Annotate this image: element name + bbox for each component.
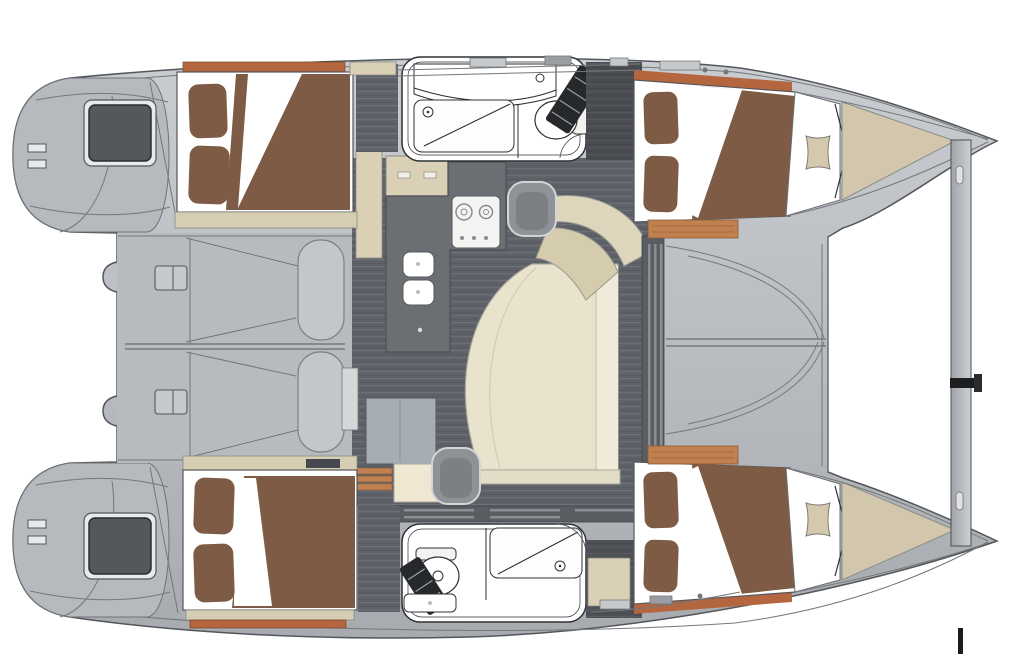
cooktop <box>452 196 500 248</box>
sofa-plinth <box>478 470 620 484</box>
top-stern <box>13 78 178 232</box>
top-forward-cabin <box>634 70 796 238</box>
cooktop-knob <box>472 236 476 240</box>
sofa-back-cushion <box>596 266 618 470</box>
drain <box>418 328 422 332</box>
deck-latch <box>155 390 187 414</box>
salon-chair-bottom <box>432 448 480 504</box>
transom-step <box>28 520 46 528</box>
cooktop-knob <box>484 236 488 240</box>
corridor-cabinet <box>588 558 630 606</box>
bed-shelf <box>186 610 354 620</box>
fridge-cabinet <box>366 398 436 464</box>
top-head <box>402 57 604 161</box>
bed-pillow <box>643 155 679 212</box>
slat-panel <box>342 368 358 430</box>
cabinet-handle <box>398 172 410 178</box>
bed-pillow <box>193 477 235 534</box>
vent <box>306 459 340 468</box>
bottom-head <box>399 524 586 622</box>
beam-fitting <box>974 374 982 392</box>
transom-step <box>28 144 46 152</box>
cockpit-bench-bottom <box>298 352 344 452</box>
beam-slot <box>956 166 963 184</box>
shower-pan <box>490 528 582 578</box>
bed-trim <box>183 62 345 72</box>
beam-fitting <box>958 628 963 654</box>
bed-pillow <box>643 471 679 528</box>
bed-pillow <box>188 145 230 204</box>
bed-shelf <box>175 212 357 228</box>
salon-lower-wall <box>396 506 646 522</box>
bed-pillow <box>643 91 679 144</box>
bottom-stern <box>13 463 178 617</box>
shower-pan <box>414 100 514 152</box>
beam-slot <box>956 492 963 510</box>
cooktop-knob <box>460 236 464 240</box>
cabin-corridor-floor <box>356 64 398 152</box>
headboard <box>648 220 738 238</box>
top-stern-hatch <box>89 105 151 161</box>
bottom-stern-hatch <box>89 518 151 574</box>
transom-step <box>28 160 46 168</box>
bed-pillow <box>188 83 228 138</box>
salon-chair-top <box>508 182 556 236</box>
aft-cabinet-strip <box>356 150 382 258</box>
bottom-forward-cabin <box>634 446 796 614</box>
bed-pillow <box>193 543 235 602</box>
cabinet-handle <box>424 172 436 178</box>
catamaran-floorplan <box>0 0 1016 665</box>
cabin-corridor-floor <box>358 506 400 612</box>
deck-latch <box>155 266 187 290</box>
headboard <box>648 446 738 464</box>
galley-upper-cabinet <box>386 156 448 196</box>
companionway-steps <box>352 468 392 490</box>
bow-cushion <box>806 503 830 536</box>
bow-crossbeam <box>950 140 982 654</box>
transom-step <box>28 536 46 544</box>
bed-trim <box>190 620 346 628</box>
bow-cushion <box>806 136 830 169</box>
sink <box>404 594 456 612</box>
cockpit-bench-top <box>298 240 344 340</box>
floorplan-svg <box>0 0 1016 665</box>
bed-pillow <box>643 539 679 592</box>
salon <box>342 150 664 522</box>
